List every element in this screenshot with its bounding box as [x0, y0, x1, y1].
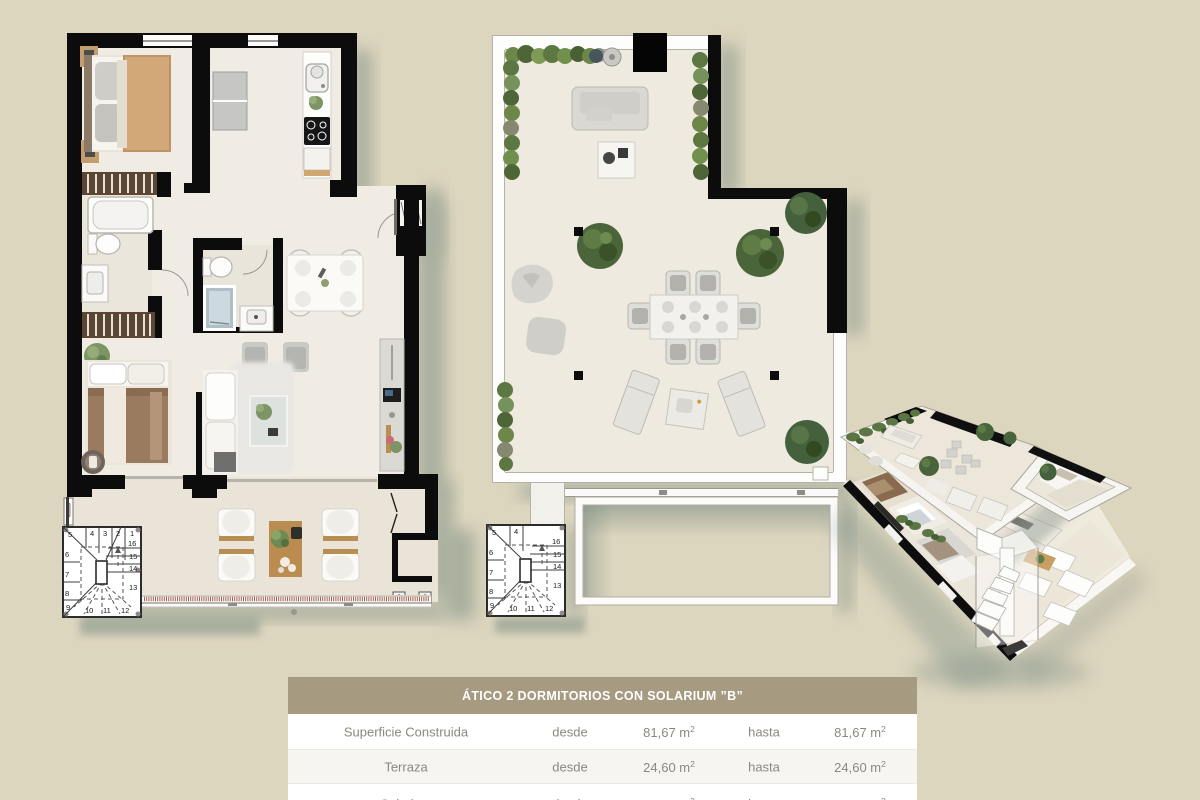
svg-text:11: 11 — [527, 604, 535, 613]
svg-text:15: 15 — [553, 550, 561, 559]
svg-text:4: 4 — [514, 527, 518, 536]
svg-text:7: 7 — [489, 568, 493, 577]
svg-text:10: 10 — [85, 606, 93, 615]
svg-text:5: 5 — [492, 528, 496, 537]
svg-text:16: 16 — [552, 537, 560, 546]
svg-text:15: 15 — [129, 552, 137, 561]
svg-text:14: 14 — [553, 562, 561, 571]
svg-text:12: 12 — [545, 604, 553, 613]
svg-text:3: 3 — [103, 529, 107, 538]
svg-text:7: 7 — [65, 570, 69, 579]
svg-text:8: 8 — [489, 587, 493, 596]
svg-text:13: 13 — [553, 581, 561, 590]
svg-text:6: 6 — [65, 550, 69, 559]
svg-text:11: 11 — [103, 606, 111, 615]
svg-text:14: 14 — [129, 564, 137, 573]
svg-text:9: 9 — [490, 601, 494, 610]
svg-text:2: 2 — [116, 529, 120, 538]
svg-text:6: 6 — [489, 548, 493, 557]
svg-text:10: 10 — [509, 604, 517, 613]
svg-text:13: 13 — [129, 583, 137, 592]
svg-text:9: 9 — [66, 603, 70, 612]
svg-text:1: 1 — [130, 529, 134, 538]
svg-text:8: 8 — [65, 589, 69, 598]
svg-text:12: 12 — [121, 606, 129, 615]
svg-text:4: 4 — [90, 529, 94, 538]
svg-text:16: 16 — [128, 539, 136, 548]
svg-text:5: 5 — [68, 530, 72, 539]
